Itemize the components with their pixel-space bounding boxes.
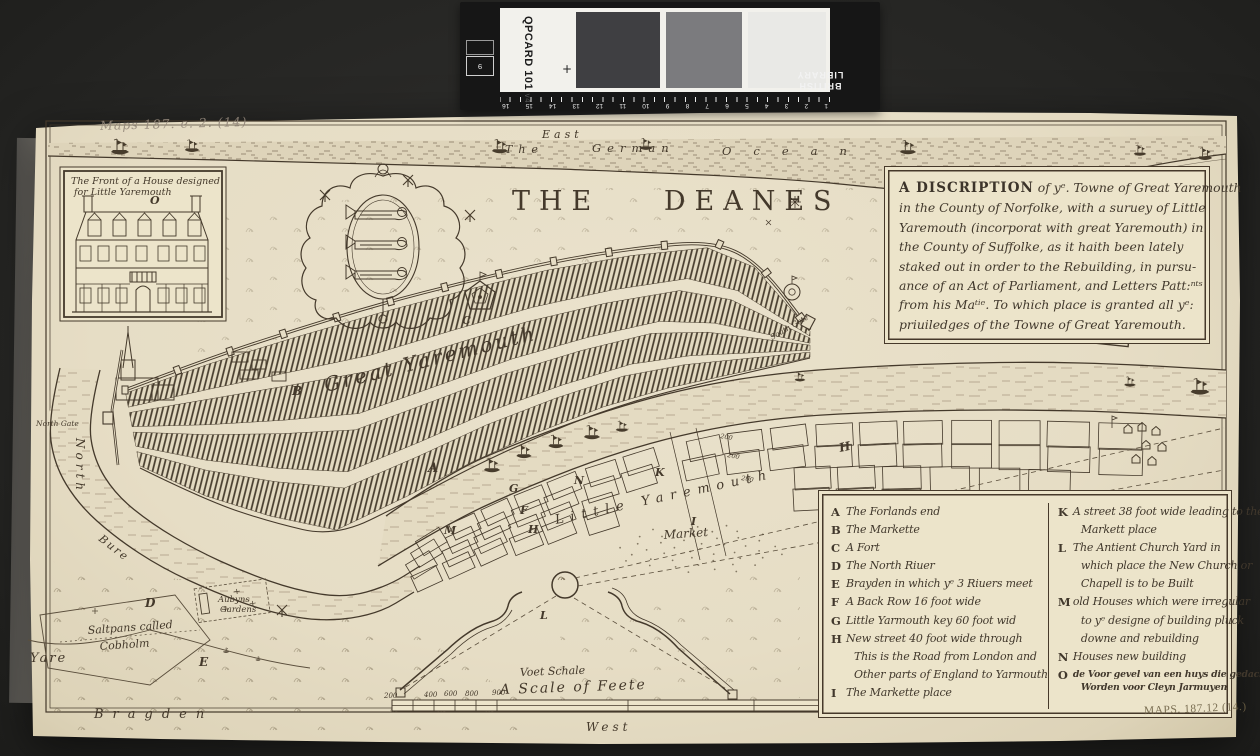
- legend-text: A street 38 foot wide leading to theMark…: [1073, 503, 1260, 539]
- british-library-mark: BRITISH LIBRARY: [798, 54, 842, 106]
- legend-key: G: [831, 612, 846, 630]
- legend-key: D: [831, 557, 846, 575]
- legend-key: H: [831, 630, 846, 684]
- label-gardens-2: Gardens: [220, 605, 257, 615]
- registration-cross-icon: +: [562, 62, 572, 76]
- label-ocean-ocean: Ocean: [722, 144, 869, 158]
- label-east: East: [541, 128, 583, 141]
- legend-entry-N: NHouses new building: [1058, 648, 1260, 666]
- legend-entry-K: KA street 38 foot wide leading to theMar…: [1058, 503, 1260, 539]
- label-ocean-german: German: [592, 141, 675, 155]
- legend-text: A Back Row 16 foot wide: [846, 593, 1048, 611]
- qp-card-white-panel: QPCARD 101 v4 +: [500, 8, 830, 92]
- legend-entry-D: DThe North Riuer: [831, 557, 1048, 575]
- legend-key: A: [831, 503, 846, 521]
- scale-num-400: 400: [423, 691, 438, 699]
- scale-num-600: 600: [444, 690, 458, 698]
- plot-depth-200: 200: [719, 432, 734, 442]
- label-bragden: Bragden: [93, 707, 213, 722]
- label-ocean-the: The: [505, 143, 544, 156]
- legend-entry-F: FA Back Row 16 foot wide: [831, 593, 1048, 611]
- index-letter-h2: H: [837, 439, 853, 455]
- description-line: the County of Suffolke, as it haith been…: [899, 237, 1196, 256]
- legend-text: Little Yarmouth key 60 foot wid: [846, 612, 1048, 630]
- legend-key: L: [1058, 539, 1073, 593]
- label-yare: Yare: [30, 651, 67, 666]
- legend-text: A Fort: [846, 539, 1048, 557]
- legend-key: K: [1058, 503, 1073, 539]
- index-letter-c: C: [462, 314, 471, 327]
- grey-patch-dark: [576, 12, 660, 88]
- qp-ruler-numbers: 12345678910111213141516: [500, 102, 830, 109]
- index-letter-k: K: [654, 466, 665, 479]
- scale-num-800: 800: [465, 690, 479, 698]
- index-letter-n: N: [573, 474, 585, 487]
- digitized-map-photo: { "colors":{"paper":"#e8e0c9","ink":"#44…: [0, 0, 1260, 756]
- legend-entry-B: BThe Markette: [831, 521, 1048, 539]
- qp-corner-box: [466, 40, 494, 55]
- index-letter-i: I: [690, 515, 697, 528]
- description-line: A DISCRIPTION of yᵉ. Towne of Great Yare…: [899, 178, 1196, 198]
- legend-text: New street 40 foot wide throughThis is t…: [846, 630, 1048, 684]
- label-gardens-1: Aubyns: [217, 595, 250, 605]
- scale-num-900: 900: [492, 689, 506, 697]
- index-letter-a: A: [426, 461, 438, 476]
- legend-text: Houses new building: [1073, 648, 1260, 666]
- qp-ruler: 12345678910111213141516: [500, 92, 830, 109]
- index-letter-e: E: [198, 655, 209, 669]
- legend-key: M: [1058, 593, 1073, 647]
- west-wall: [103, 350, 122, 465]
- index-letter-b: B: [291, 384, 302, 398]
- legend-text: The Markette: [846, 521, 1048, 539]
- legend-entry-O: Ode Voor gevel van een huys die gedachtW…: [1058, 666, 1260, 695]
- windmill-icon: [320, 190, 330, 202]
- legend-entry-L: LThe Antient Church Yard inwhich place t…: [1058, 539, 1260, 593]
- inset-caption-1: The Front of a House designed: [71, 176, 220, 187]
- grey-patch-mid: [666, 12, 742, 88]
- legend-text: de Voor gevel van een huys die gedachtWo…: [1073, 666, 1260, 695]
- new-house-icon: [1148, 457, 1156, 466]
- description-line: staked out in order to the Rebuilding, i…: [899, 257, 1196, 276]
- label-north: North: [73, 437, 87, 494]
- index-letter-f: F: [519, 504, 529, 517]
- description-line: Yaremouth (incorporat with great Yaremou…: [899, 218, 1196, 237]
- new-house-icon: [1152, 427, 1160, 436]
- color-calibration-card: QPCARD 101 v4 + 9 1234567891011121314151…: [460, 2, 880, 110]
- legend-text: old Houses which were irregularto yᵉ des…: [1073, 593, 1260, 647]
- description-heading: A DISCRIPTION: [899, 180, 1034, 196]
- legend-entry-C: CA Fort: [831, 539, 1048, 557]
- north-gate-tower: [103, 412, 113, 424]
- plot-depth-200: 200: [726, 451, 741, 461]
- description-cartouche: A DISCRIPTION of yᵉ. Towne of Great Yare…: [884, 166, 1210, 344]
- legend-entry-H: HNew street 40 foot wide throughThis is …: [831, 630, 1048, 684]
- legend-column-right: KA street 38 foot wide leading to theMar…: [1048, 503, 1260, 709]
- new-house-icon: [1158, 443, 1166, 452]
- legend-column-left: AThe Forlands endBThe MarketteCA FortDTh…: [831, 503, 1048, 709]
- legend-entry-E: EBrayden in which yᵉ 3 Riuers meet: [831, 575, 1048, 593]
- legend-text: The North Riuer: [846, 557, 1048, 575]
- inset-letter-o: O: [150, 194, 160, 207]
- map-title: THE DEANES: [512, 186, 841, 217]
- new-house-icon: [1142, 441, 1150, 450]
- legend-text: The Forlands end: [846, 503, 1048, 521]
- legend-box: AThe Forlands endBThe MarketteCA FortDTh…: [818, 490, 1232, 718]
- label-market: Market: [662, 525, 708, 542]
- index-letter-l: L: [539, 609, 548, 622]
- new-house-icon: [1124, 425, 1132, 434]
- legend-key: O: [1058, 666, 1073, 695]
- scale-num-200: 200: [383, 692, 398, 700]
- qp-card-brand: QPCARD 101 v4: [522, 16, 534, 103]
- index-letter-g: G: [509, 482, 518, 495]
- new-house-icon: [1132, 455, 1140, 464]
- legend-entry-I: IThe Markette place: [831, 684, 1048, 702]
- legend-text: Brayden in which yᵉ 3 Riuers meet: [846, 575, 1048, 593]
- legend-entry-A: AThe Forlands end: [831, 503, 1048, 521]
- description-line: ance of an Act of Parliament, and Letter…: [899, 276, 1196, 295]
- qp-corner-digit-box: 9: [466, 56, 494, 76]
- legend-entry-G: GLittle Yarmouth key 60 foot wid: [831, 612, 1048, 630]
- index-letter-m: M: [443, 524, 457, 537]
- label-west: West: [586, 720, 631, 734]
- legend-key: N: [1058, 648, 1073, 666]
- description-line: from his Maᵗⁱᵉ. To which place is grante…: [899, 295, 1196, 314]
- legend-key: B: [831, 521, 846, 539]
- legend-text: The Antient Church Yard inwhich place th…: [1073, 539, 1260, 593]
- legend-key: I: [831, 684, 846, 702]
- index-letter-d: D: [144, 596, 156, 610]
- legend-entry-M: Mold Houses which were irregularto yᵉ de…: [1058, 593, 1260, 647]
- label-north-gate: North Gate: [35, 419, 79, 428]
- legend-key: F: [831, 593, 846, 611]
- index-letter-h: H: [527, 523, 539, 536]
- legend-key: C: [831, 539, 846, 557]
- description-line: in the County of Norfolke, with a suruey…: [899, 198, 1196, 217]
- legend-key: E: [831, 575, 846, 593]
- description-line: priuiledges of the Towne of Great Yaremo…: [899, 315, 1196, 334]
- legend-text: The Markette place: [846, 684, 1048, 702]
- scale-voet-schale: Voet Schale: [520, 664, 586, 679]
